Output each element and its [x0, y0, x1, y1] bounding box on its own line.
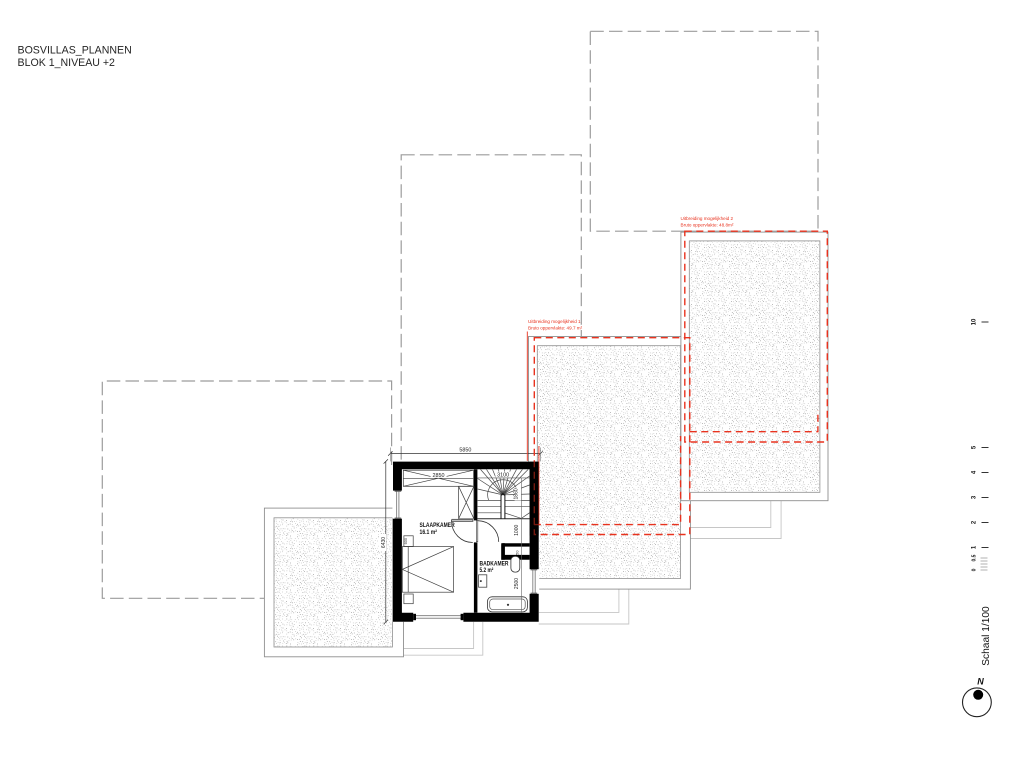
svg-text:N: N — [977, 677, 984, 687]
svg-text:5850: 5850 — [459, 447, 471, 453]
svg-text:BOSVILLAS_PLANNEN: BOSVILLAS_PLANNEN — [18, 45, 132, 57]
svg-text:Uitbreiding mogelijkheid 2: Uitbreiding mogelijkheid 2 — [681, 216, 734, 221]
svg-text:5.2 m²: 5.2 m² — [480, 567, 494, 574]
svg-text:BADKAMER: BADKAMER — [480, 562, 510, 568]
svg-text:2850: 2850 — [433, 473, 445, 479]
svg-text:50: 50 — [515, 550, 520, 555]
svg-text:BLOK 1_NIVEAU +2: BLOK 1_NIVEAU +2 — [18, 57, 116, 69]
svg-text:2500: 2500 — [514, 578, 520, 589]
svg-text:Schaal 1/100: Schaal 1/100 — [981, 606, 992, 666]
svg-text:1860: 1860 — [514, 488, 520, 499]
svg-text:600: 600 — [404, 538, 408, 544]
svg-text:16.1 m²: 16.1 m² — [420, 529, 438, 536]
svg-text:SLAAPKAMER: SLAAPKAMER — [420, 523, 456, 529]
svg-text:Uitbreiding mogelijkheid 1: Uitbreiding mogelijkheid 1 — [528, 319, 581, 324]
svg-text:10: 10 — [972, 318, 978, 325]
svg-text:6430: 6430 — [381, 537, 387, 548]
svg-text:Bruto oppervlakte: 48.8m²: Bruto oppervlakte: 48.8m² — [681, 222, 734, 227]
svg-text:0: 0 — [972, 568, 978, 571]
svg-text:1000: 1000 — [514, 525, 520, 536]
svg-text:0.5: 0.5 — [972, 554, 978, 561]
svg-text:Bruto oppervlakte: 49.7 m²: Bruto oppervlakte: 49.7 m² — [528, 325, 583, 330]
